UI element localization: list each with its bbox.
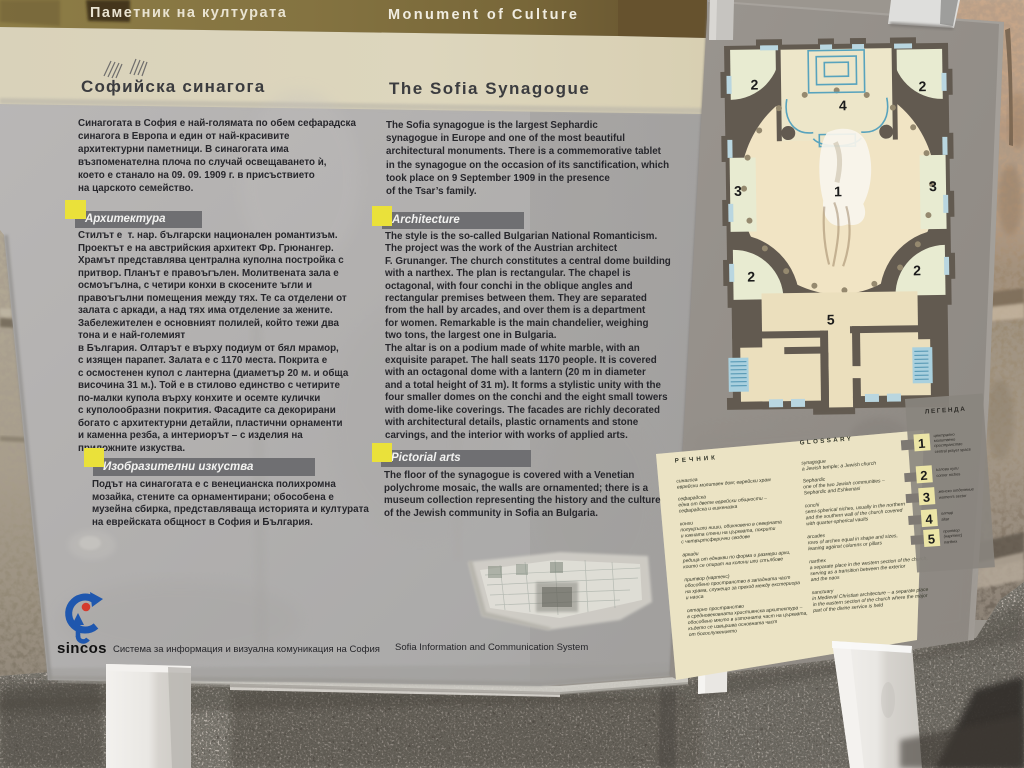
svg-text:altar: altar [941, 516, 950, 522]
svg-text:2: 2 [747, 269, 755, 285]
svg-text:5: 5 [827, 311, 835, 327]
svg-text:4: 4 [839, 97, 847, 113]
svg-text:олтар: олтар [941, 510, 954, 516]
svg-text:sincos: sincos [57, 640, 106, 657]
svg-text:3: 3 [929, 178, 937, 194]
svg-text:3: 3 [734, 183, 742, 199]
svg-text:3: 3 [922, 489, 930, 504]
svg-text:2: 2 [918, 78, 926, 94]
svg-text:1: 1 [918, 436, 926, 451]
svg-text:2: 2 [920, 468, 928, 483]
svg-text:2: 2 [750, 76, 758, 92]
svg-text:2: 2 [913, 262, 921, 278]
svg-text:narthex: narthex [944, 539, 958, 545]
svg-text:1: 1 [834, 183, 842, 199]
svg-text:5: 5 [927, 531, 935, 546]
